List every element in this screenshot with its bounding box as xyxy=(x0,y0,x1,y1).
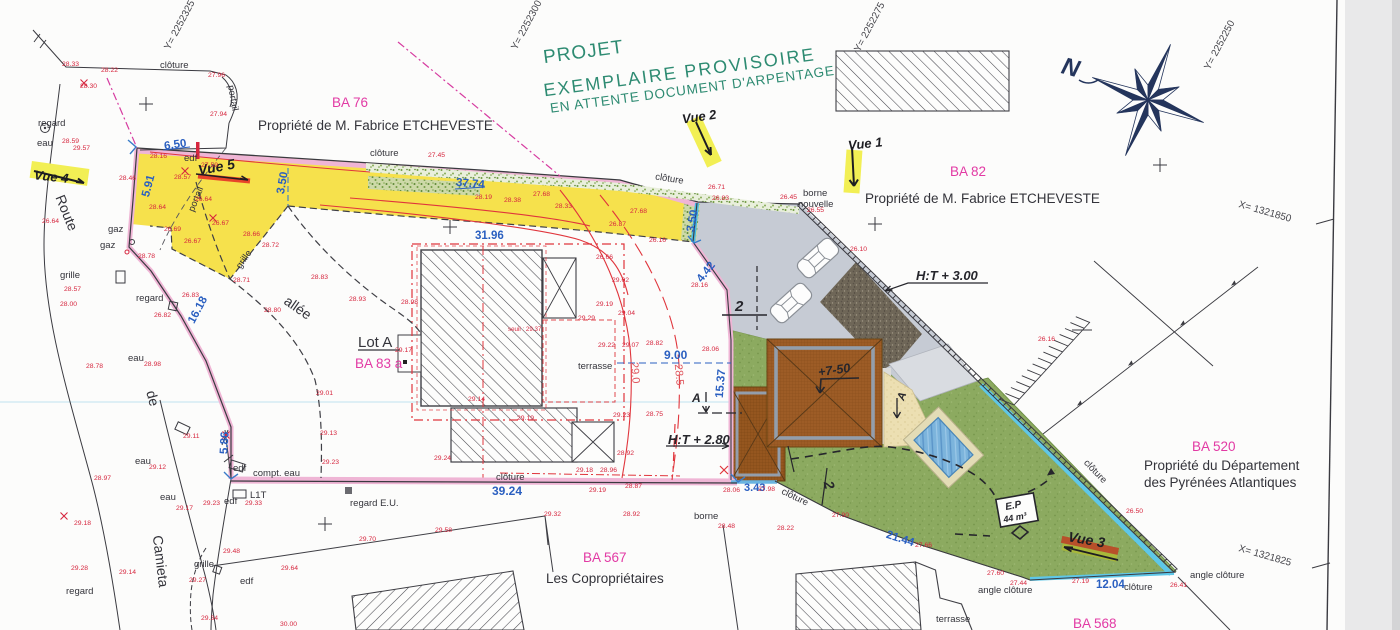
svg-text:des Pyrénées Atlantiques: des Pyrénées Atlantiques xyxy=(1144,475,1297,490)
svg-text:Propriété de M. Fabrice ETCHEV: Propriété de M. Fabrice ETCHEVESTE xyxy=(865,191,1100,206)
svg-text:29.19: 29.19 xyxy=(517,415,534,422)
svg-text:5.86: 5.86 xyxy=(218,431,231,454)
svg-text:28.19: 28.19 xyxy=(475,194,492,201)
svg-text:28.92: 28.92 xyxy=(617,450,634,457)
svg-text:29.24: 29.24 xyxy=(434,455,451,462)
svg-text:edf: edf xyxy=(224,496,238,507)
svg-text:28.64: 28.64 xyxy=(149,204,166,211)
svg-text:borne: borne xyxy=(694,511,718,522)
svg-text:angle clôture: angle clôture xyxy=(1190,570,1244,581)
svg-text:27.68: 27.68 xyxy=(533,191,550,198)
svg-text:28.75: 28.75 xyxy=(646,411,663,418)
svg-text:12.04: 12.04 xyxy=(1096,579,1125,591)
svg-text:BA 83 a: BA 83 a xyxy=(355,356,403,371)
svg-text:29.28: 29.28 xyxy=(71,565,88,572)
svg-text:29.48: 29.48 xyxy=(223,548,240,555)
svg-text:29.18: 29.18 xyxy=(74,520,91,527)
svg-text:28.48: 28.48 xyxy=(718,523,735,530)
svg-text:A: A xyxy=(691,391,701,405)
svg-text:28.98: 28.98 xyxy=(401,299,418,306)
svg-text:29.19: 29.19 xyxy=(596,301,613,308)
svg-text:Lot A: Lot A xyxy=(358,334,392,351)
svg-text:29.70: 29.70 xyxy=(359,536,376,543)
svg-text:edf: edf xyxy=(240,576,254,587)
svg-text:26.83: 26.83 xyxy=(712,195,729,202)
svg-text:28.33: 28.33 xyxy=(62,61,79,68)
svg-text:BA 567: BA 567 xyxy=(583,550,627,565)
svg-text:eau: eau xyxy=(160,492,176,503)
svg-text:29.34: 29.34 xyxy=(201,615,218,622)
svg-text:27.68: 27.68 xyxy=(630,208,647,215)
svg-text:eau: eau xyxy=(128,353,144,364)
svg-text:27.44: 27.44 xyxy=(1010,580,1027,587)
svg-text:Propriété de M. Fabrice ETCHEV: Propriété de M. Fabrice ETCHEVESTE xyxy=(258,118,493,133)
svg-text:26.16: 26.16 xyxy=(1038,336,1055,343)
svg-text:26.67: 26.67 xyxy=(212,220,229,227)
svg-text:28.57: 28.57 xyxy=(174,174,191,181)
svg-text:clôture: clôture xyxy=(370,148,399,159)
svg-text:28.72: 28.72 xyxy=(262,242,279,249)
svg-text:28.98: 28.98 xyxy=(144,361,161,368)
svg-text:29.17: 29.17 xyxy=(176,505,193,512)
svg-text:28.22: 28.22 xyxy=(777,525,794,532)
svg-text:2: 2 xyxy=(734,298,744,315)
svg-text:28.06: 28.06 xyxy=(723,487,740,494)
svg-text:29.32: 29.32 xyxy=(544,511,561,518)
svg-text:28.93: 28.93 xyxy=(349,296,366,303)
svg-text:26.55: 26.55 xyxy=(807,207,824,214)
svg-text:BA 520: BA 520 xyxy=(1192,439,1236,454)
svg-text:29.13: 29.13 xyxy=(320,430,337,437)
svg-text:29.58: 29.58 xyxy=(435,527,452,534)
svg-text:seuil : 29.37: seuil : 29.37 xyxy=(508,326,542,333)
svg-text:39.24: 39.24 xyxy=(492,484,522,498)
svg-text:Propriété du Département: Propriété du Département xyxy=(1144,458,1300,473)
svg-text:28.59: 28.59 xyxy=(62,138,79,145)
svg-text:H:T + 2.80: H:T + 2.80 xyxy=(668,432,731,447)
svg-text:regard: regard xyxy=(136,293,163,304)
svg-text:29.18: 29.18 xyxy=(576,467,593,474)
svg-text:29.64: 29.64 xyxy=(281,565,298,572)
svg-text:clôture: clôture xyxy=(1124,582,1153,593)
svg-text:29.07: 29.07 xyxy=(622,342,639,349)
svg-text:15.37: 15.37 xyxy=(714,369,728,399)
svg-text:28.71: 28.71 xyxy=(233,277,250,284)
svg-text:29.23: 29.23 xyxy=(322,459,339,466)
svg-text:29.27: 29.27 xyxy=(189,577,206,584)
svg-text:29.17: 29.17 xyxy=(395,347,412,354)
svg-text:26.71: 26.71 xyxy=(708,184,725,191)
svg-text:terrasse: terrasse xyxy=(578,361,612,372)
svg-text:regard E.U.: regard E.U. xyxy=(350,498,399,509)
svg-text:grille: grille xyxy=(194,559,214,570)
svg-text:27.66: 27.66 xyxy=(915,542,932,549)
svg-text:28.33: 28.33 xyxy=(555,203,572,210)
svg-text:28.66: 28.66 xyxy=(243,231,260,238)
svg-text:compt. eau: compt. eau xyxy=(253,468,300,479)
svg-text:28.80: 28.80 xyxy=(264,307,281,314)
svg-text:28.57: 28.57 xyxy=(64,286,81,293)
svg-text:regard: regard xyxy=(66,586,93,597)
svg-text:26.45: 26.45 xyxy=(780,194,797,201)
svg-text:eau: eau xyxy=(37,138,53,149)
svg-text:29.14: 29.14 xyxy=(119,569,136,576)
svg-text:29.12: 29.12 xyxy=(149,464,166,471)
svg-text:29.23: 29.23 xyxy=(203,500,220,507)
svg-text:28.82: 28.82 xyxy=(646,340,663,347)
svg-text:26.64: 26.64 xyxy=(42,218,59,225)
svg-text:28.46: 28.46 xyxy=(119,175,136,182)
svg-text:29.57: 29.57 xyxy=(73,145,90,152)
svg-text:clôture: clôture xyxy=(160,60,189,71)
svg-text:9.00: 9.00 xyxy=(664,348,688,362)
svg-text:28.92: 28.92 xyxy=(623,511,640,518)
svg-text:edf: edf xyxy=(184,153,198,164)
svg-text:28.78: 28.78 xyxy=(138,253,155,260)
svg-text:28.97: 28.97 xyxy=(94,475,111,482)
svg-text:28.16: 28.16 xyxy=(691,282,708,289)
svg-text:28.30: 28.30 xyxy=(80,83,97,90)
svg-text:BA 568: BA 568 xyxy=(1073,616,1117,630)
svg-text:27.45: 27.45 xyxy=(428,152,445,159)
svg-text:28.83: 28.83 xyxy=(311,274,328,281)
svg-text:26.16: 26.16 xyxy=(649,237,666,244)
svg-text:28.16: 28.16 xyxy=(150,153,167,160)
svg-text:27.94: 27.94 xyxy=(210,111,227,118)
svg-text:29.22: 29.22 xyxy=(598,342,615,349)
svg-text:gaz: gaz xyxy=(108,224,124,235)
svg-text:29.19: 29.19 xyxy=(589,487,606,494)
svg-text:31.96: 31.96 xyxy=(475,230,504,242)
svg-text:29.04: 29.04 xyxy=(618,310,635,317)
svg-text:Les Copropriétaires: Les Copropriétaires xyxy=(546,571,664,586)
svg-text:26.67: 26.67 xyxy=(184,238,201,245)
svg-text:28.96: 28.96 xyxy=(600,467,617,474)
svg-text:26.83: 26.83 xyxy=(182,292,199,299)
svg-text:29.29: 29.29 xyxy=(578,315,595,322)
svg-text:29.11: 29.11 xyxy=(183,433,200,440)
svg-text:27.60: 27.60 xyxy=(987,570,1004,577)
svg-text:26.82: 26.82 xyxy=(154,312,171,319)
svg-text:28.78: 28.78 xyxy=(86,363,103,370)
svg-text:27.96: 27.96 xyxy=(208,72,225,79)
svg-text:gaz: gaz xyxy=(100,240,116,251)
svg-text:26.41: 26.41 xyxy=(1170,582,1187,589)
svg-text:28.00: 28.00 xyxy=(60,301,77,308)
svg-text:29.14: 29.14 xyxy=(468,396,485,403)
svg-text:27.90: 27.90 xyxy=(832,512,849,519)
svg-text:29.23: 29.23 xyxy=(613,412,630,419)
svg-text:28.5: 28.5 xyxy=(672,364,686,386)
svg-text:borne: borne xyxy=(803,188,827,199)
svg-text:29.0: 29.0 xyxy=(628,362,642,384)
svg-text:28.06: 28.06 xyxy=(702,346,719,353)
svg-text:28.22: 28.22 xyxy=(101,67,118,74)
svg-text:30.00: 30.00 xyxy=(280,621,297,628)
svg-text:H:T + 3.00: H:T + 3.00 xyxy=(916,268,979,283)
svg-text:clôture: clôture xyxy=(496,472,525,483)
svg-text:26.87: 26.87 xyxy=(609,221,626,228)
svg-text:28.87: 28.87 xyxy=(625,483,642,490)
svg-text:26.64: 26.64 xyxy=(195,196,212,203)
svg-text:27.19: 27.19 xyxy=(1072,578,1089,585)
svg-text:terrasse: terrasse xyxy=(936,614,970,625)
svg-text:BA 82: BA 82 xyxy=(950,164,986,179)
svg-text:29.02: 29.02 xyxy=(612,277,629,284)
svg-text:26.66: 26.66 xyxy=(596,254,613,261)
svg-text:26.69: 26.69 xyxy=(164,226,181,233)
svg-text:28.38: 28.38 xyxy=(504,197,521,204)
svg-text:27.98: 27.98 xyxy=(758,486,775,493)
svg-text:edf: edf xyxy=(233,463,247,474)
svg-text:27.59: 27.59 xyxy=(201,162,218,169)
svg-text:29.01: 29.01 xyxy=(316,390,333,397)
svg-text:grille: grille xyxy=(60,270,80,281)
svg-text:29.33: 29.33 xyxy=(245,500,262,507)
svg-text:BA 76: BA 76 xyxy=(332,95,368,110)
svg-text:26.50: 26.50 xyxy=(1126,508,1143,515)
svg-text:26.10: 26.10 xyxy=(850,246,867,253)
svg-text:regard: regard xyxy=(38,118,65,129)
